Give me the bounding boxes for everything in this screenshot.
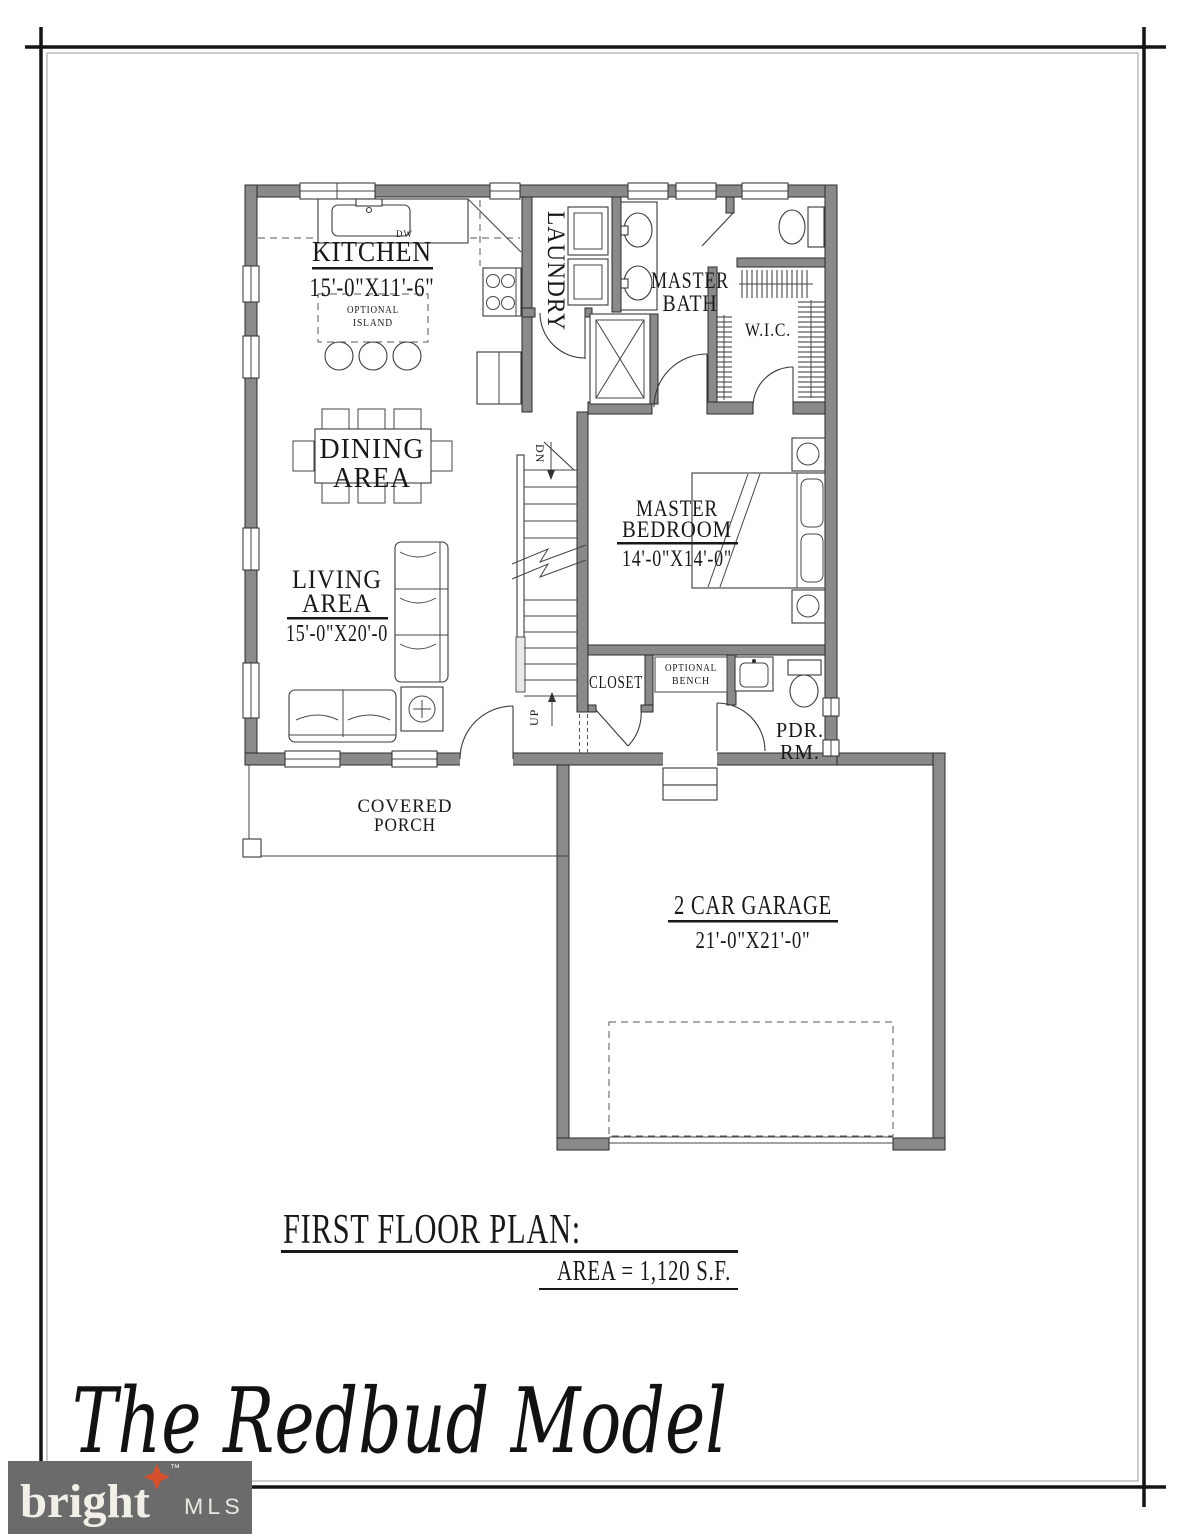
bedroom-door xyxy=(654,354,707,407)
up-arrow xyxy=(548,692,556,702)
staircase: DN UP xyxy=(512,442,588,753)
nightstand xyxy=(792,438,825,471)
bright-mls-logo: bright ™ MLS xyxy=(8,1461,252,1534)
corner-counter xyxy=(468,199,521,252)
dining-label-1: DINING xyxy=(320,434,425,465)
bench-label-2: BENCH xyxy=(672,675,710,687)
model-name: The Redbud Model xyxy=(72,1369,727,1474)
pdr-label-1: PDR. xyxy=(776,718,824,742)
porch-post xyxy=(243,839,261,857)
floor-plan-sheet: DN UP DW OPTIONAL xyxy=(0,0,1186,1536)
closet-door xyxy=(596,710,641,746)
walk-in-closet: W.I.C. xyxy=(717,270,825,400)
hall-closet: CLOSET xyxy=(589,672,643,692)
kitchen-label: KITCHEN xyxy=(312,237,432,268)
master-bath-label-1: MASTER xyxy=(651,268,729,293)
garage-entry-door xyxy=(717,703,765,751)
dining-area: DINING AREA xyxy=(293,409,452,503)
living-dims: 15'-0"X20'-0 xyxy=(286,621,388,647)
living-label-2: AREA xyxy=(302,589,372,618)
pdr-label-2: RM. xyxy=(780,740,820,764)
optional-bench: OPTIONAL BENCH xyxy=(655,657,727,692)
pdr-toilet xyxy=(788,660,821,707)
logo-suffix: MLS xyxy=(184,1494,244,1519)
garage-door-outline xyxy=(609,1022,893,1136)
wic-door xyxy=(753,367,793,407)
title-block: FIRST FLOOR PLAN: AREA = 1,120 S.F. xyxy=(281,1207,738,1290)
bench-label-1: OPTIONAL xyxy=(665,662,717,674)
logo-trademark: ™ xyxy=(170,1463,180,1474)
sofa xyxy=(395,542,448,682)
laundry-label: LAUNDRY xyxy=(542,211,569,331)
dining-label-2: AREA xyxy=(333,463,411,494)
toilet-room-door xyxy=(702,212,734,246)
porch-label-1: COVERED xyxy=(358,796,453,817)
master-bedroom-label-2: BEDROOM xyxy=(622,517,732,542)
closet-label: CLOSET xyxy=(589,672,643,692)
garage-dims: 21'-0"X21'-0" xyxy=(696,928,811,954)
washer-dryer xyxy=(568,207,608,305)
wic-label: W.I.C. xyxy=(745,320,791,341)
stool xyxy=(325,342,353,370)
laundry: LAUNDRY xyxy=(542,207,608,331)
master-bath-label-2: BATH xyxy=(663,291,718,316)
side-table-lamp xyxy=(401,687,443,731)
sheet-title: FIRST FLOOR PLAN: xyxy=(283,1207,581,1253)
stool xyxy=(359,342,387,370)
stairs-dn-label: DN xyxy=(533,444,547,463)
stool xyxy=(393,342,421,370)
range xyxy=(483,268,521,316)
garage-entry-steps xyxy=(663,768,717,800)
loveseat xyxy=(289,690,396,742)
garage-label: 2 CAR GARAGE xyxy=(674,890,832,920)
refrigerator xyxy=(477,352,521,404)
kitchen: DW OPTIONAL ISLAND KITCHEN 15'-0"X11'-6" xyxy=(258,199,521,404)
garage: 2 CAR GARAGE 21'-0"X21'-0" xyxy=(609,768,893,1143)
pdr-sink xyxy=(735,657,773,691)
living-area: LIVING AREA 15'-0"X20'-0 xyxy=(286,542,448,742)
logo-brand: bright xyxy=(20,1475,150,1528)
double-vanity xyxy=(621,202,657,310)
covered-porch: COVERED PORCH xyxy=(243,765,569,857)
basement-door xyxy=(544,442,574,470)
stairs-up-label: UP xyxy=(527,709,541,726)
porch-label-2: PORCH xyxy=(374,815,436,836)
dn-arrow xyxy=(547,470,555,480)
shower xyxy=(590,314,650,404)
island-label-1: OPTIONAL xyxy=(347,304,399,316)
island-label-2: ISLAND xyxy=(353,317,393,329)
bath-toilet xyxy=(779,207,824,247)
nightstand xyxy=(792,590,825,623)
powder-room: PDR. RM. xyxy=(735,657,824,764)
sheet-area: AREA = 1,120 S.F. xyxy=(557,1255,731,1287)
master-bedroom-dims: 14'-0"X14'-0" xyxy=(622,546,732,571)
kitchen-island: OPTIONAL ISLAND xyxy=(318,294,428,370)
master-bedroom: MASTER BEDROOM 14'-0"X14'-0" xyxy=(617,438,825,623)
kitchen-dims: 15'-0"X11'-6" xyxy=(310,273,435,302)
